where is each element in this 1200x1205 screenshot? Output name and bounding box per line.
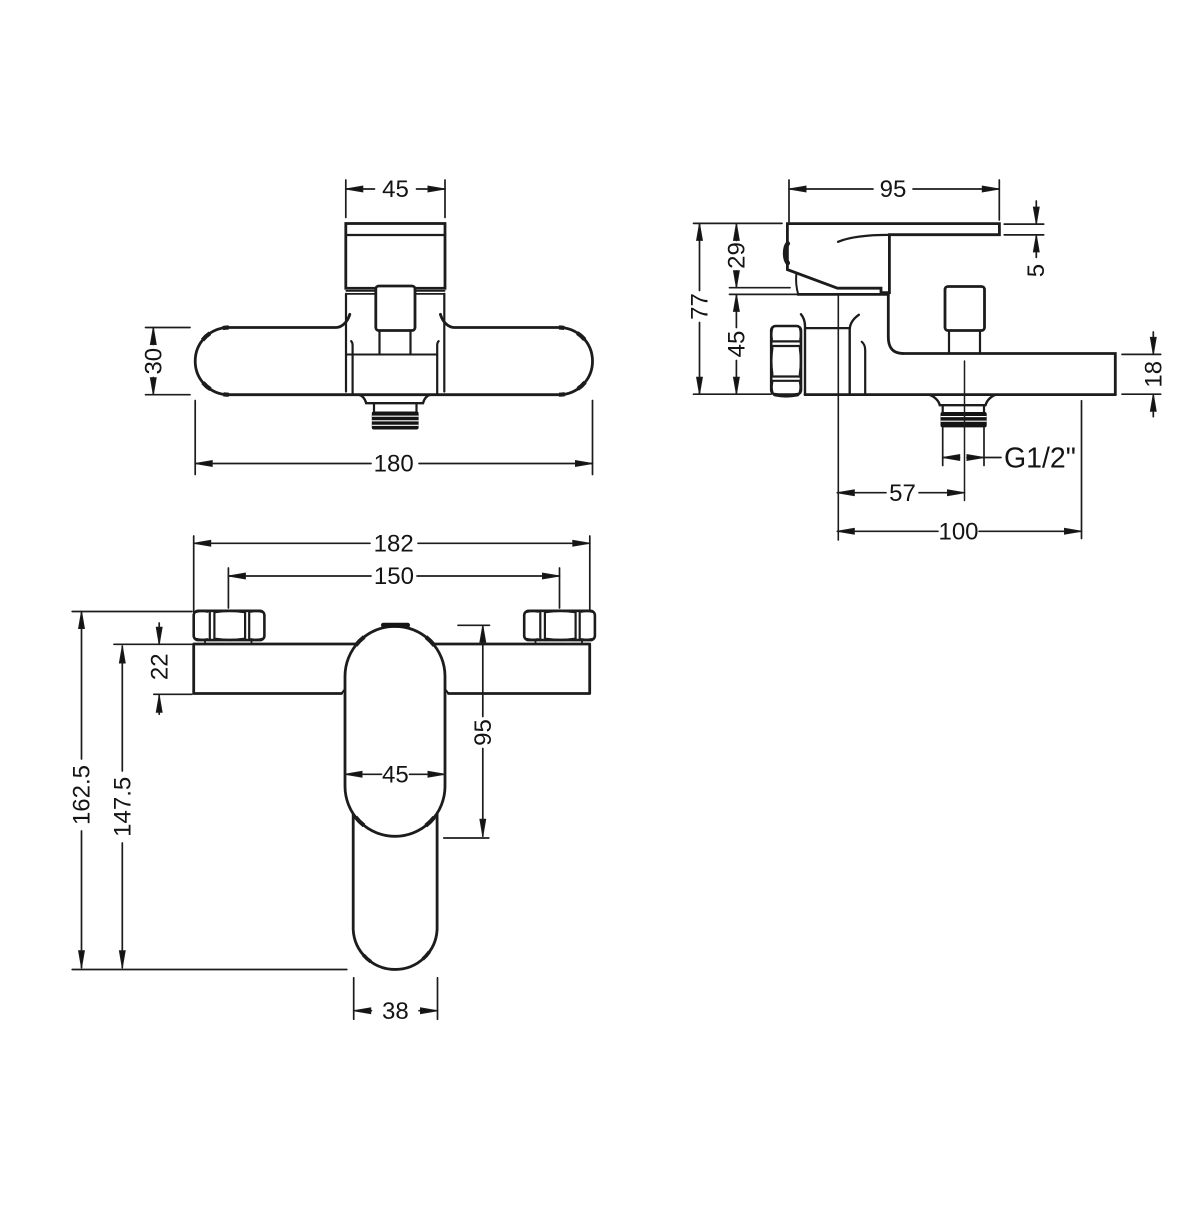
svg-text:77: 77 bbox=[687, 293, 714, 320]
svg-text:22: 22 bbox=[146, 653, 173, 680]
svg-text:57: 57 bbox=[889, 480, 916, 507]
svg-text:100: 100 bbox=[938, 519, 978, 546]
svg-text:18: 18 bbox=[1141, 361, 1168, 388]
svg-text:150: 150 bbox=[374, 563, 414, 590]
svg-text:162.5: 162.5 bbox=[69, 765, 96, 825]
svg-text:182: 182 bbox=[374, 531, 414, 558]
svg-text:45: 45 bbox=[382, 762, 409, 789]
svg-text:29: 29 bbox=[724, 242, 751, 269]
svg-text:30: 30 bbox=[141, 348, 168, 375]
svg-text:45: 45 bbox=[724, 331, 751, 358]
svg-text:5: 5 bbox=[1023, 264, 1050, 277]
svg-text:95: 95 bbox=[470, 719, 497, 746]
svg-text:38: 38 bbox=[382, 998, 409, 1025]
svg-text:95: 95 bbox=[880, 176, 907, 203]
svg-text:45: 45 bbox=[382, 176, 409, 203]
svg-text:147.5: 147.5 bbox=[110, 777, 137, 837]
svg-text:180: 180 bbox=[374, 451, 414, 478]
svg-text:G1/2": G1/2" bbox=[1004, 443, 1076, 475]
